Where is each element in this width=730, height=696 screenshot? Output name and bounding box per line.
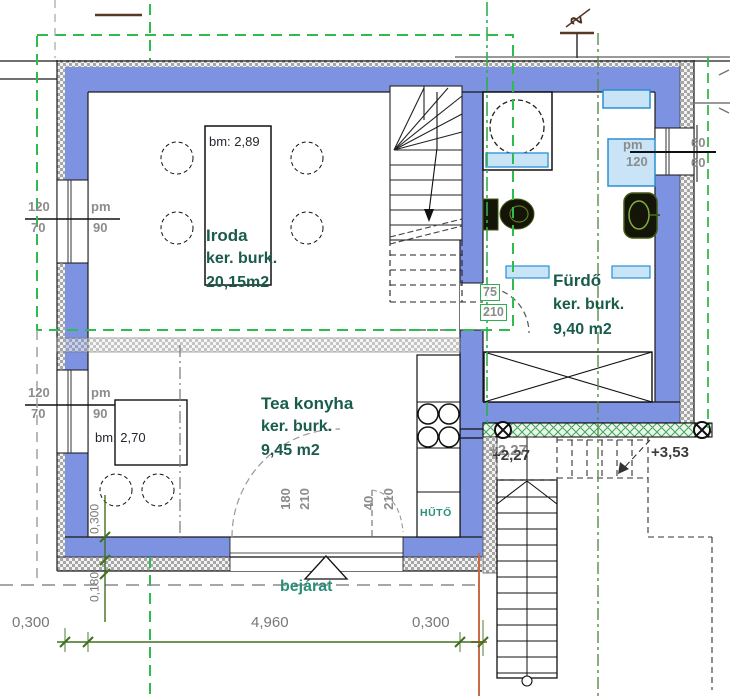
- dim-bottom-right: 0,300: [412, 615, 450, 631]
- kitchen-clear-height: bm: 2,70: [95, 431, 146, 445]
- bath-area: 9,40 m2: [553, 322, 612, 339]
- window1-pm-value: 90: [93, 221, 107, 235]
- bath-top-window-sill: [603, 90, 650, 108]
- level-terrace: +3,53: [651, 445, 689, 461]
- office-room-name: Iroda: [206, 227, 248, 245]
- sink: [624, 193, 660, 238]
- entrance-door-width: 180: [279, 488, 293, 510]
- kitchen-area: 9,45 m2: [261, 443, 320, 460]
- dim-insulation: 0,180: [89, 572, 102, 602]
- dim-wall-thickness: 0,300: [89, 504, 102, 534]
- office-finish: ker. burk.: [206, 251, 277, 268]
- kitchen-room-name: Tea konyha: [261, 395, 353, 413]
- office-chair: [161, 212, 193, 244]
- bath-window-dim-bottom: 60: [691, 156, 705, 170]
- bath-door-height: 210: [480, 304, 507, 321]
- kitchen-finish: ker. burk.: [261, 419, 332, 436]
- stove-burner: [439, 404, 459, 424]
- office-clear-height: bm: 2,89: [209, 135, 260, 149]
- level-stair-landing: +2,27: [492, 448, 530, 464]
- survey-marker: [694, 422, 710, 438]
- dim-bottom-middle: 4,960: [251, 615, 289, 631]
- kitchen-chair: [142, 474, 174, 506]
- bathtub: [484, 352, 652, 402]
- window2-sill: 70: [31, 407, 45, 421]
- window2-pm-label: pm: [91, 386, 111, 400]
- fridge-label: HŰTŐ: [420, 508, 452, 519]
- bath-cabinet: [612, 266, 650, 278]
- stove-burner: [418, 427, 438, 447]
- office-chair: [291, 142, 323, 174]
- entrance-door-height: 210: [298, 488, 312, 510]
- bath-finish: ker. burk.: [553, 297, 624, 314]
- dim-bottom-left: 0,300: [12, 615, 50, 631]
- side-leaf-width: 40: [362, 496, 376, 510]
- bath-window-pm-label: pm: [623, 138, 643, 152]
- window2-pm-value: 90: [93, 407, 107, 421]
- office-chair: [291, 212, 323, 244]
- entrance-label: bejárat: [280, 579, 332, 596]
- window1-sill: 70: [31, 221, 45, 235]
- interior-partition: [57, 338, 460, 352]
- floor-plan-drawing: [0, 0, 730, 696]
- stair-walkline-end: [522, 676, 532, 686]
- survey-marker: [495, 422, 511, 438]
- window1-width: 120: [28, 200, 50, 214]
- window-left-2: [57, 370, 88, 453]
- office-area: 20,15m2: [206, 275, 269, 292]
- bath-window-dim-top: 60: [691, 136, 705, 150]
- bath-room-name: Fürdő: [553, 272, 601, 290]
- bath-door-width: 75: [480, 284, 500, 301]
- office-chair: [161, 142, 193, 174]
- window1-pm-label: pm: [91, 200, 111, 214]
- window2-width: 120: [28, 386, 50, 400]
- toilet: [483, 199, 534, 230]
- floor-plan: bm: 2,89 Iroda ker. burk. 20,15m2 Tea ko…: [0, 0, 730, 696]
- side-leaf-height: 210: [382, 488, 396, 510]
- bath-window-pm-value: 120: [626, 155, 648, 169]
- stove-burner: [439, 427, 459, 447]
- upper-stair-dashed: [557, 437, 712, 690]
- window-left-1: [57, 180, 88, 263]
- stove-burner: [418, 404, 438, 424]
- exterior-walls: [0, 57, 730, 571]
